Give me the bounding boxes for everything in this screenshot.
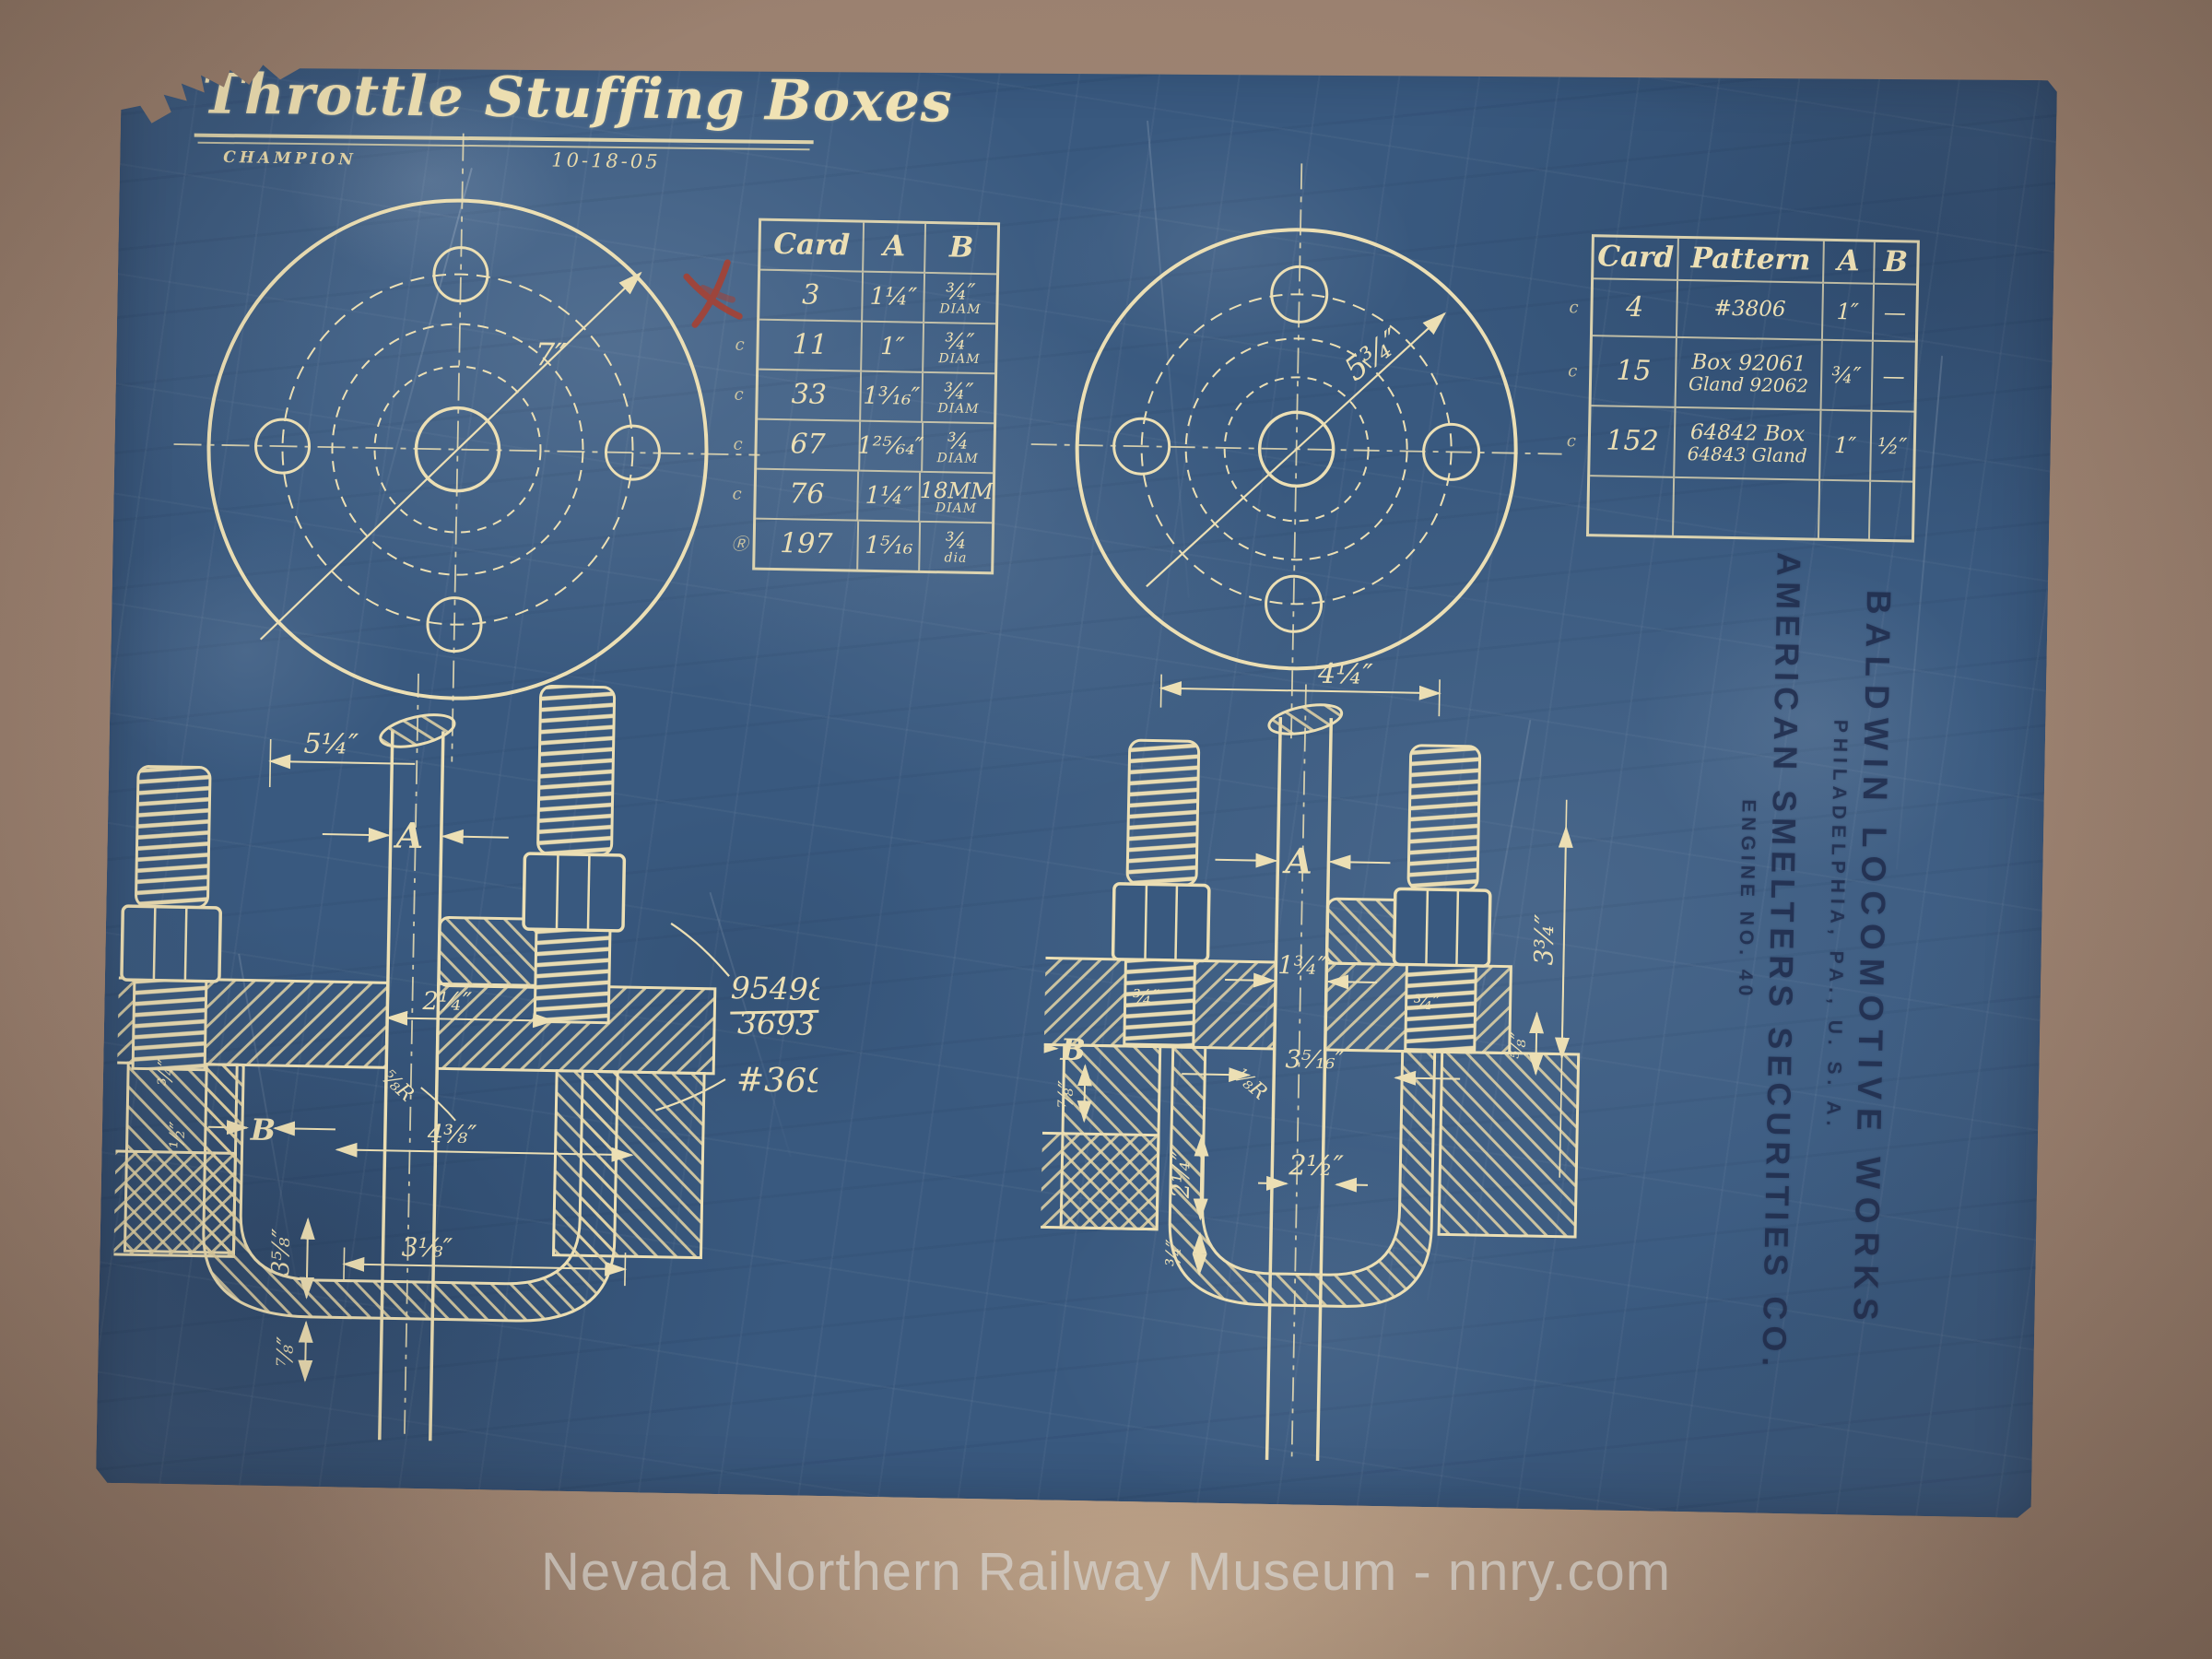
column-header: B <box>1875 242 1917 286</box>
dim-b: — <box>1872 342 1915 413</box>
dim-b: ½″ <box>1871 412 1914 483</box>
right-section-drawing: 4¼″ A 1¾″ ¾″ ¾″ B ⅛R 3⁵⁄₁₆″ 2½″ 2¼″ ¾″ ⅞… <box>1036 652 1696 1475</box>
dim-b-unit: DIAM <box>936 452 978 465</box>
row-check-mark: c <box>734 385 743 405</box>
dim-label: ¾″ <box>1132 986 1160 1010</box>
dim-a: 1¼″ <box>859 472 921 523</box>
card-number: 76 <box>756 470 859 522</box>
dim-b-unit: dia <box>944 551 967 565</box>
dim-label: 2¼″ <box>421 987 472 1017</box>
dim-label: ⅞″ <box>272 1336 299 1367</box>
row-check-mark: c <box>735 335 744 355</box>
dim-b: ¾ <box>946 529 968 552</box>
dim-b-unit: DIAM <box>938 352 980 366</box>
dim-label: ¾″ <box>1413 992 1441 1016</box>
dim-label: 3⅝″ <box>267 1228 296 1276</box>
column-header: B <box>925 224 997 275</box>
table-row: c 67 1²⁵⁄₆₄″ ¾DIAM <box>757 420 994 475</box>
table-row: 3 1¼″ ¾″DIAM <box>759 271 996 325</box>
dim-b-unit: DIAM <box>939 302 981 316</box>
stamp-company: BALDWIN LOCOMOTIVE WORKS <box>1845 554 1899 1366</box>
card-number: 197 <box>755 520 859 570</box>
table-row: Ⓡ 197 1⁵⁄₁₆ ¾dia <box>755 520 992 572</box>
radius-label: ⅛R <box>1230 1065 1271 1105</box>
dim-label: A <box>1282 840 1312 882</box>
card-number: 4 <box>1593 279 1679 338</box>
dim-b: — <box>1874 285 1916 343</box>
pattern-number: #3806 <box>1713 299 1785 322</box>
dim-b-unit: DIAM <box>937 402 979 416</box>
dim-a: 1³⁄₁₆″ <box>861 372 924 423</box>
flange-radius-label: 7″ <box>535 336 567 374</box>
row-check-mark: c <box>733 435 742 454</box>
dim-label: ¾″ <box>155 1057 179 1086</box>
table-row: c 4 #3806 1″ — <box>1593 279 1916 342</box>
table-row: c 152 64842 Box64843 Gland 1″ ½″ <box>1590 406 1913 482</box>
column-header: A <box>864 223 926 274</box>
card-number: 33 <box>758 371 862 422</box>
row-check-mark: c <box>1568 361 1577 381</box>
part-number: #3693 <box>736 1061 826 1100</box>
table-row: c 33 1³⁄₁₆″ ¾″DIAM <box>758 371 994 425</box>
dim-label: ⅝″ <box>1508 1030 1532 1059</box>
dim-b-unit: DIAM <box>935 501 977 515</box>
dim-label: A <box>393 814 423 856</box>
card-number: 11 <box>759 321 863 372</box>
column-header: Card <box>760 221 865 273</box>
column-header: Card <box>1594 237 1679 281</box>
dim-label: 2¼″ <box>1168 1150 1196 1199</box>
blueprint-sheet: Throttle Stuffing Boxes CHAMPION 10-18-0… <box>96 45 2057 1518</box>
part-number-struck: 3693 <box>737 1005 816 1042</box>
dim-a: 1²⁵⁄₆₄″ <box>860 422 924 473</box>
column-header: A <box>1824 241 1876 285</box>
dim-b: ¾″ <box>946 280 976 303</box>
dim-label: 2½″ <box>1288 1149 1345 1182</box>
dim-label: 4⅜″ <box>427 1120 477 1149</box>
museum-watermark: Nevada Northern Railway Museum - nnry.co… <box>541 1541 1671 1603</box>
dim-label: 4¼″ <box>1317 658 1374 691</box>
dim-a: 1″ <box>862 323 924 373</box>
section-geometry <box>111 668 826 1448</box>
part-number-new: 95498 <box>730 970 825 1007</box>
table-row: c 15 Box 92061Gland 92062 ¾″ — <box>1592 336 1915 412</box>
dim-label: 5¼″ <box>303 728 359 761</box>
dim-label: B <box>1059 1032 1086 1068</box>
dim-a: 1¼″ <box>863 273 925 324</box>
pattern-number-2: 64843 Gland <box>1688 444 1807 465</box>
row-check-mark: Ⓡ <box>731 531 747 555</box>
red-check-mark <box>675 251 754 337</box>
dim-a: 1⁵⁄₁₆ <box>858 522 921 571</box>
pattern-number-2: Gland 92062 <box>1688 374 1808 395</box>
dim-a: ¾″ <box>1821 341 1873 412</box>
table-row: c 76 1¼″ 18MMDIAM <box>756 470 993 524</box>
row-check-mark: c <box>1567 431 1576 451</box>
baldwin-stamp: BALDWIN LOCOMOTIVE WORKS PHILADELPHIA, P… <box>1681 550 1899 1365</box>
card-number: 67 <box>757 420 861 472</box>
dim-label: 3¾″ <box>1528 913 1559 966</box>
dim-b: 18MM <box>920 478 994 502</box>
dim-label: ⅞″ <box>1055 1079 1079 1108</box>
row-check-mark: c <box>732 485 741 504</box>
dim-label: 3⅛″ <box>401 1232 453 1264</box>
dim-label: ¾″ <box>1162 1238 1186 1266</box>
dim-b: ¾ <box>947 429 970 453</box>
dim-b: ¾″ <box>945 330 975 353</box>
dim-label: ½″ <box>167 1121 191 1149</box>
card-number: 3 <box>759 271 864 323</box>
stamp-owner: AMERICAN SMELTERS SECURITIES CO. <box>1755 552 1808 1364</box>
left-card-table: Card A B 3 1¼″ ¾″DIAM c 11 1″ ¾″DIAM c 3… <box>752 218 1000 575</box>
column-header: Pattern <box>1678 239 1824 284</box>
left-section-drawing: 5¼″ A 2¼″ B 4⅜″ ⅝R ¾″ ½″ 3⅛″ 3⅝″ ⅞″ 9549… <box>111 635 826 1459</box>
dim-label: 1¾″ <box>1277 951 1327 981</box>
card-number: 152 <box>1590 406 1677 478</box>
photo-scene: Throttle Stuffing Boxes CHAMPION 10-18-0… <box>0 0 2212 1659</box>
table-row: c 11 1″ ¾″DIAM <box>759 321 995 375</box>
dim-a: 1″ <box>1823 284 1875 342</box>
card-number: 15 <box>1592 336 1678 408</box>
dim-b: ¾″ <box>944 380 974 403</box>
dim-label: 3⁵⁄₁₆″ <box>1285 1045 1345 1075</box>
row-check-mark: c <box>1569 298 1578 317</box>
dim-label: B <box>250 1112 276 1148</box>
dim-a: 1″ <box>1820 411 1872 482</box>
